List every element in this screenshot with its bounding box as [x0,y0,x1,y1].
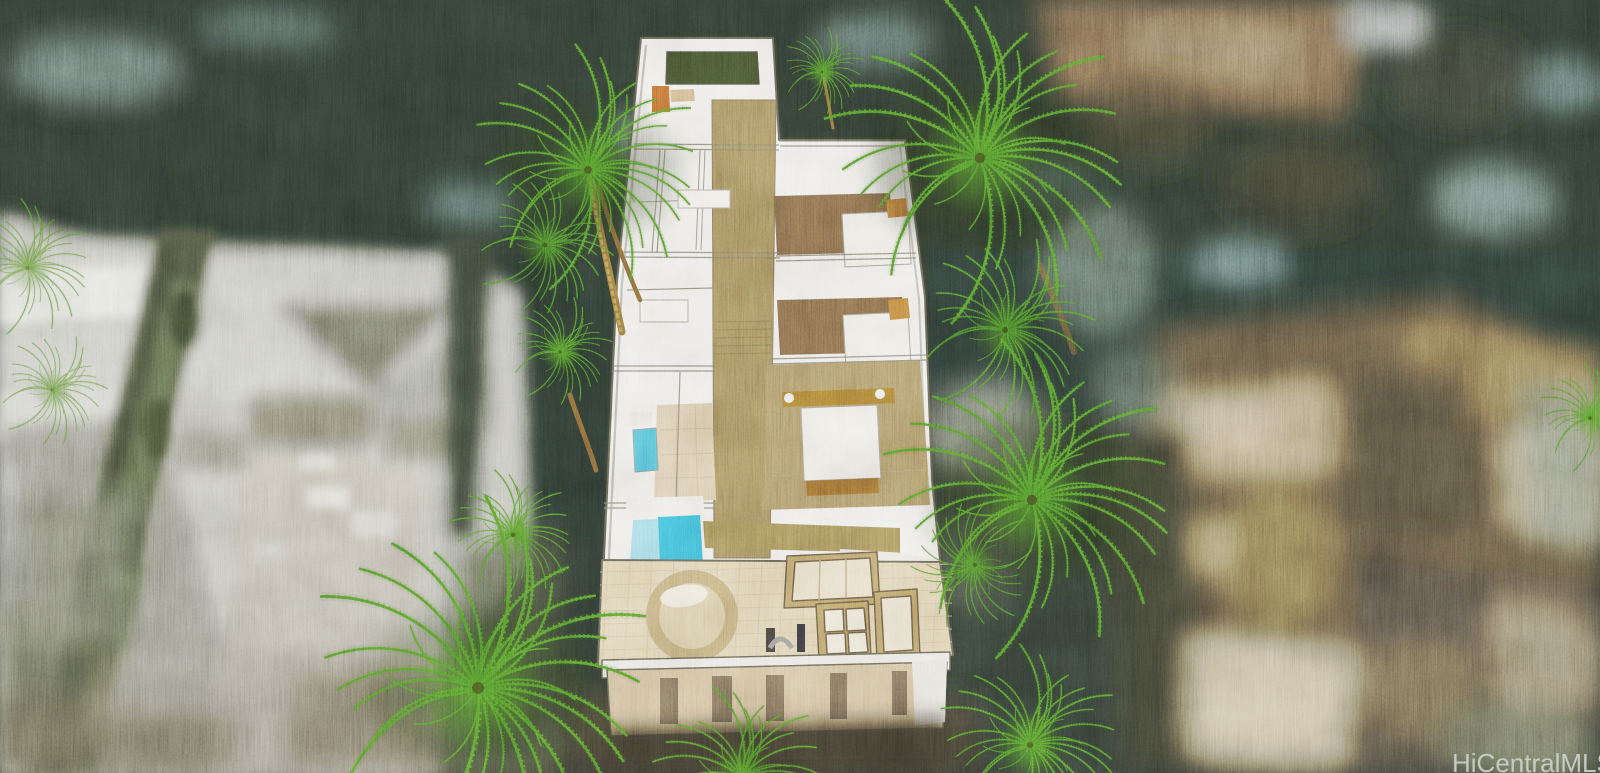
svg-text:HiCentralMLS: HiCentralMLS [1452,748,1600,773]
